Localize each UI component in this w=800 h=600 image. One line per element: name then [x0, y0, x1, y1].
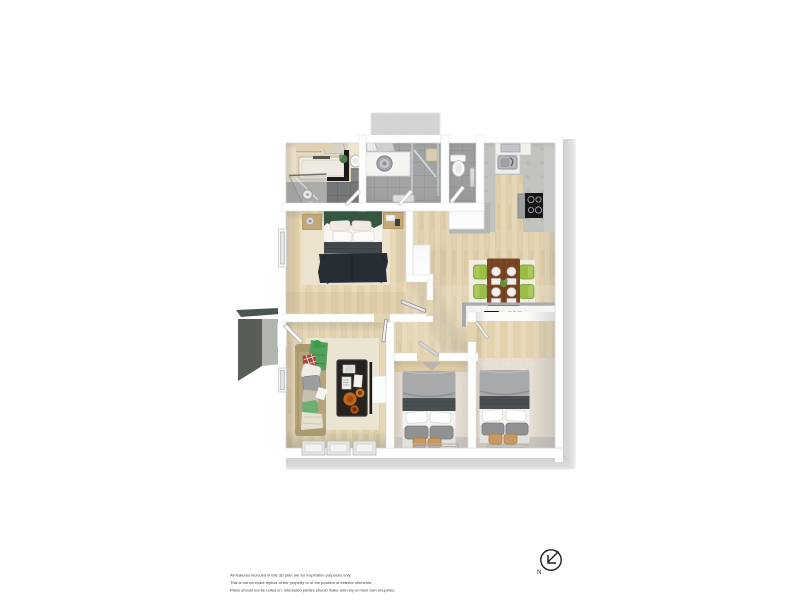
- svg-text:This is not an exact replica o: This is not an exact replica of the prop…: [230, 580, 372, 585]
- svg-text:All features included in this: All features included in this 3D plan ar…: [230, 573, 351, 578]
- svg-text:N: N: [537, 570, 541, 576]
- svg-text:Plans should not be relied on.: Plans should not be relied on. Intereste…: [230, 588, 395, 593]
